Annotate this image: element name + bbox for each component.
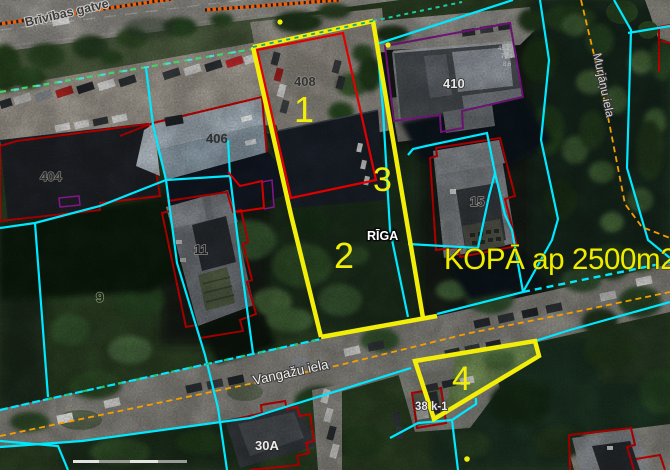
svg-text:408: 408 (294, 74, 316, 89)
svg-text:KOPĀ ap 2500m2: KOPĀ ap 2500m2 (444, 243, 670, 276)
svg-text:RĪGA: RĪGA (367, 229, 398, 243)
svg-text:410: 410 (443, 76, 465, 91)
svg-text:11: 11 (194, 242, 208, 257)
svg-text:15: 15 (470, 194, 484, 209)
svg-text:38 k-1: 38 k-1 (415, 401, 448, 413)
svg-text:404: 404 (40, 169, 62, 184)
svg-text:9: 9 (96, 289, 104, 305)
svg-text:4: 4 (452, 360, 471, 398)
svg-text:2: 2 (334, 235, 354, 276)
svg-text:1: 1 (294, 89, 314, 130)
svg-text:30A: 30A (255, 438, 279, 453)
svg-text:406: 406 (206, 131, 228, 146)
svg-text:3: 3 (373, 161, 392, 199)
